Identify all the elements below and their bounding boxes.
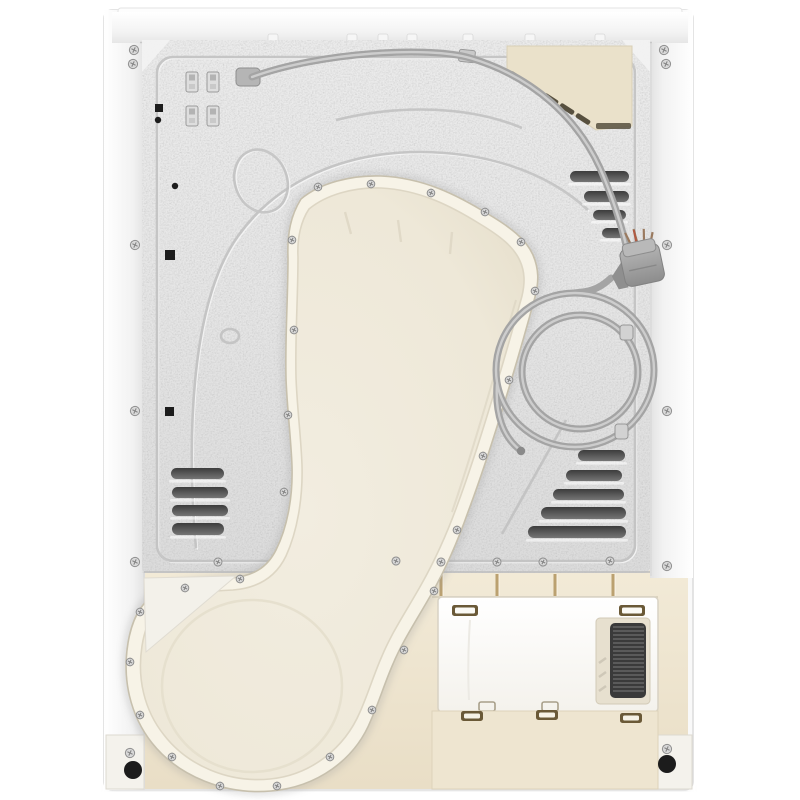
vent-slot: [541, 507, 626, 519]
vent-slot-lip: [526, 539, 628, 542]
vent-slot: [172, 487, 228, 498]
vent-slot: [172, 523, 224, 535]
vent-slot-lip: [568, 183, 631, 186]
dryer-rear-illustration: [0, 0, 800, 800]
stamped-clip: [207, 72, 219, 92]
black-square-marker: [165, 407, 174, 416]
clip-hole: [189, 84, 195, 89]
vent-slot-lip: [551, 501, 626, 504]
stamped-clip: [186, 106, 198, 126]
black-dot-marker: [155, 117, 161, 123]
corner-bracket-left: [106, 735, 144, 789]
vent-slot-lip: [539, 520, 628, 523]
panel-clip-tab: [455, 608, 475, 614]
dryer-rear-photo: [0, 0, 800, 800]
vent-slot-lip: [170, 499, 230, 502]
kick-clip-tab: [539, 713, 555, 718]
strip-divider: [612, 574, 615, 596]
strip-divider-highlight: [557, 574, 558, 596]
vent-slot: [566, 470, 622, 481]
black-square-marker: [155, 104, 163, 112]
leveling-foot: [124, 761, 142, 779]
clip-hole: [210, 118, 216, 123]
cord-retainer-clip: [620, 325, 633, 340]
vent-slot-lip: [170, 517, 230, 520]
panel-clip-tab: [622, 608, 642, 614]
strip-divider-highlight: [499, 574, 500, 596]
vent-slot: [578, 450, 625, 461]
black-square-marker: [165, 250, 175, 260]
blanking-plate-bottom-slot: [596, 123, 631, 129]
vent-slot-lip: [564, 482, 624, 485]
black-dot-marker: [172, 183, 178, 189]
vent-slot-lip: [582, 203, 631, 206]
stamped-clip: [207, 106, 219, 126]
clip-hole: [189, 109, 195, 115]
vent-slot: [528, 526, 626, 538]
vent-slot: [171, 468, 224, 479]
vent-slot: [553, 489, 624, 500]
lower-service-area: [432, 574, 658, 789]
cord-retainer-clip: [615, 424, 628, 439]
clip-hole: [189, 118, 195, 123]
strip-divider: [496, 574, 499, 596]
vent-slot-lip: [170, 536, 226, 539]
vent-slot-lip: [576, 462, 627, 465]
kick-clip-tab: [623, 716, 639, 721]
clip-hole: [210, 109, 216, 115]
cord-tip: [517, 447, 525, 455]
right-frame: [650, 10, 693, 578]
top-panel: [112, 8, 688, 45]
vent-slot: [172, 505, 228, 516]
leveling-foot: [658, 755, 676, 773]
strip-divider-highlight: [615, 574, 616, 596]
vent-slot-lip: [169, 480, 226, 483]
clip-hole: [210, 84, 216, 89]
kick-clip-tab: [464, 714, 480, 719]
stamped-clip: [186, 72, 198, 92]
clip-hole: [189, 75, 195, 81]
clip-hole: [210, 75, 216, 81]
strip-divider: [554, 574, 557, 596]
